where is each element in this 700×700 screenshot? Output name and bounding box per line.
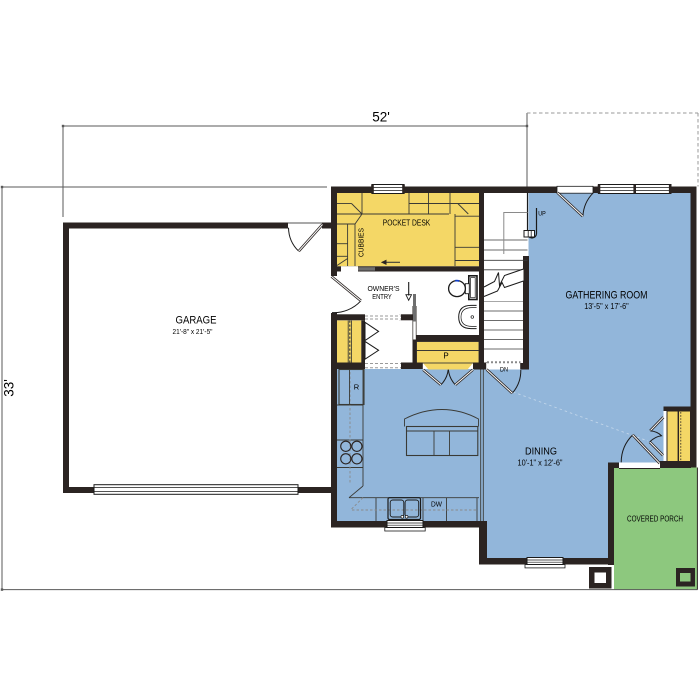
svg-text:GARAGE: GARAGE [176,315,217,327]
svg-text:ENTRY: ENTRY [372,292,392,301]
svg-text:10'-1" x 12'-6": 10'-1" x 12'-6" [518,458,563,467]
svg-text:DW: DW [431,501,442,508]
svg-text:21'-8" x 21'-5": 21'-8" x 21'-5" [173,327,213,336]
svg-text:GATHERING ROOM: GATHERING ROOM [566,289,648,301]
svg-text:P: P [443,351,448,360]
svg-text:CUBBIES: CUBBIES [357,228,366,257]
svg-text:13'-5" x 17'-6": 13'-5" x 17'-6" [584,302,629,311]
svg-text:DINING: DINING [525,446,557,458]
svg-text:POCKET DESK: POCKET DESK [383,218,431,228]
svg-text:R: R [354,382,360,391]
svg-text:52': 52' [372,110,390,125]
svg-text:33': 33' [2,379,17,397]
svg-text:DN: DN [500,367,508,374]
svg-text:UP: UP [538,210,546,217]
svg-text:COVERED PORCH: COVERED PORCH [627,514,683,523]
